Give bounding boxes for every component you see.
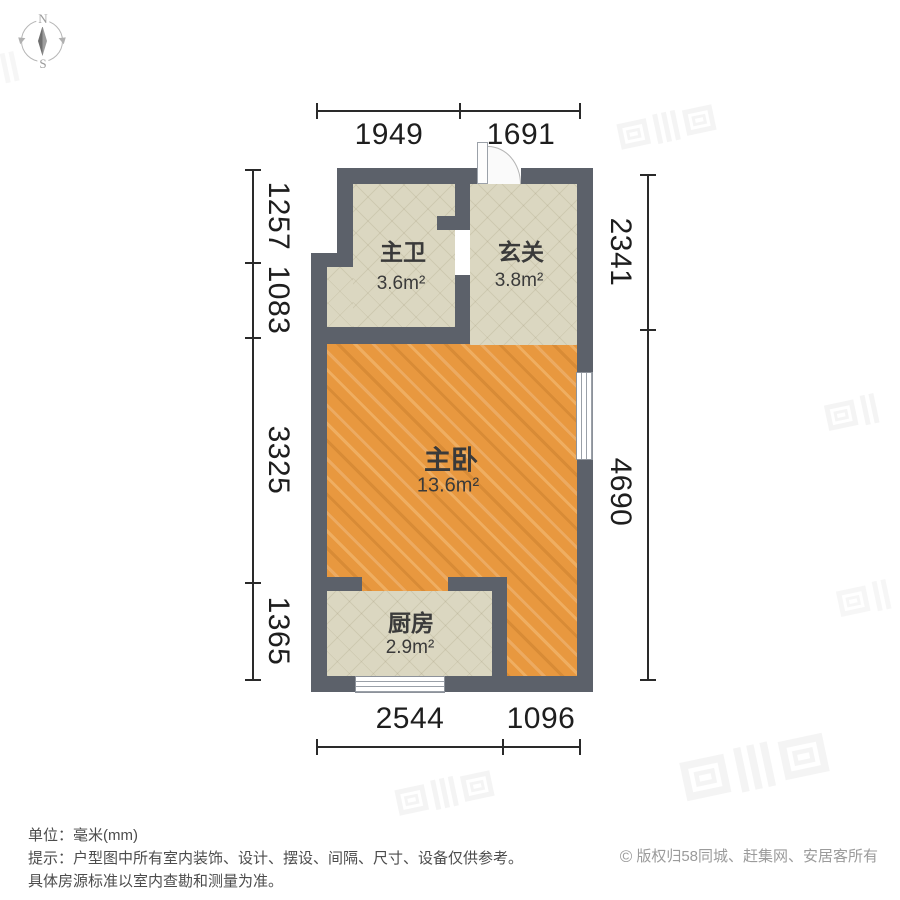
room-area-kitchen: 2.9m² — [386, 637, 435, 659]
room-label-bathroom: 主卫 — [380, 233, 426, 267]
wall-left-step — [311, 253, 353, 267]
dim-tick — [245, 679, 261, 681]
wall-kitchen-right — [492, 577, 507, 676]
footer-tip-line2: 具体房源标准以室内查勘和测量为准。 — [28, 870, 283, 891]
dim-line-right — [647, 175, 649, 680]
dim-label-bottom-right: 1096 — [507, 702, 576, 736]
dim-tick — [245, 337, 261, 339]
wall-bottom — [311, 676, 593, 692]
dim-line-left — [252, 170, 254, 680]
dim-line-bottom — [317, 746, 580, 748]
watermark — [823, 393, 879, 433]
footer-copyright: ©版权归58同城、赶集网、安居客所有 — [620, 845, 878, 867]
room-label-bedroom: 主卧 — [424, 439, 478, 478]
wall-left — [311, 253, 327, 692]
copyright-icon: © — [620, 847, 633, 866]
room-area-bedroom: 13.6m² — [417, 475, 479, 498]
bathroom-floor-notch — [327, 267, 353, 327]
dim-label-right-1: 2341 — [603, 218, 637, 287]
dim-label-right-2: 4690 — [603, 458, 637, 527]
footer-tip-line1: 提示：户型图中所有室内装饰、设计、摆设、间隔、尺寸、设备仅供参考。 — [28, 847, 523, 868]
dim-tick — [640, 174, 656, 176]
dim-label-left-1: 1257 — [261, 182, 295, 251]
watermark — [835, 579, 891, 619]
dim-line-top — [317, 110, 580, 112]
dim-label-top-right: 1691 — [487, 118, 556, 152]
footer-unit-note: 单位：毫米(mm) — [28, 824, 138, 845]
room-label-hall: 玄关 — [498, 233, 544, 267]
wall-divider-stub — [437, 216, 470, 230]
dim-label-left-2: 1083 — [261, 266, 295, 335]
watermark — [394, 768, 495, 818]
bedroom-window-icon — [576, 372, 593, 460]
watermark — [616, 102, 717, 152]
dim-label-bottom-left: 2544 — [376, 702, 445, 736]
dim-label-left-4: 1365 — [261, 597, 295, 666]
wall-divider-bottom — [455, 275, 470, 342]
room-area-hall: 3.8m² — [495, 270, 544, 292]
dim-tick — [245, 262, 261, 264]
dim-tick — [579, 103, 581, 119]
dim-tick — [579, 739, 581, 755]
wall-kitchen-top-left — [327, 577, 362, 591]
dim-tick — [640, 679, 656, 681]
compass-north-label: N — [36, 11, 49, 27]
dim-tick — [316, 103, 318, 119]
watermark — [679, 730, 831, 804]
room-area-bathroom: 3.6m² — [377, 273, 426, 295]
room-label-kitchen: 厨房 — [388, 604, 434, 638]
dim-tick — [245, 169, 261, 171]
kitchen-window-icon — [355, 676, 445, 693]
dim-tick — [502, 739, 504, 755]
dim-tick — [316, 739, 318, 755]
copyright-text: 版权归58同城、赶集网、安居客所有 — [636, 848, 878, 865]
dim-tick — [459, 103, 461, 119]
dim-tick — [245, 582, 261, 584]
wall-bathroom-bottom — [327, 327, 470, 344]
dim-label-left-3: 3325 — [261, 426, 295, 495]
wall-top-left — [337, 168, 477, 184]
floorplan-page: N S 主卫 3.6m² 玄关 3.8m² 主卧 13.6m² 厨房 2.9m²… — [0, 0, 900, 900]
watermark — [0, 51, 20, 91]
dim-label-top-left: 1949 — [355, 118, 424, 152]
dim-tick — [640, 329, 656, 331]
compass-south-label: S — [37, 56, 48, 72]
